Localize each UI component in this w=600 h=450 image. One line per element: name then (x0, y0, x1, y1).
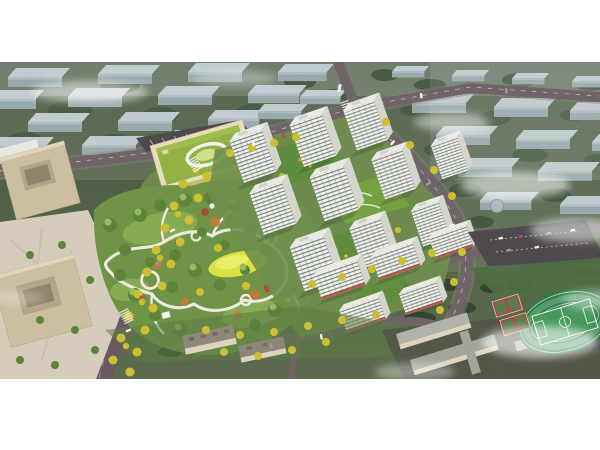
top-margin (0, 0, 600, 62)
bottom-margin (0, 379, 600, 450)
aerial-rendering: Bird's-eye masterplan visualization of a… (0, 0, 600, 450)
rendering-canvas (0, 0, 600, 450)
